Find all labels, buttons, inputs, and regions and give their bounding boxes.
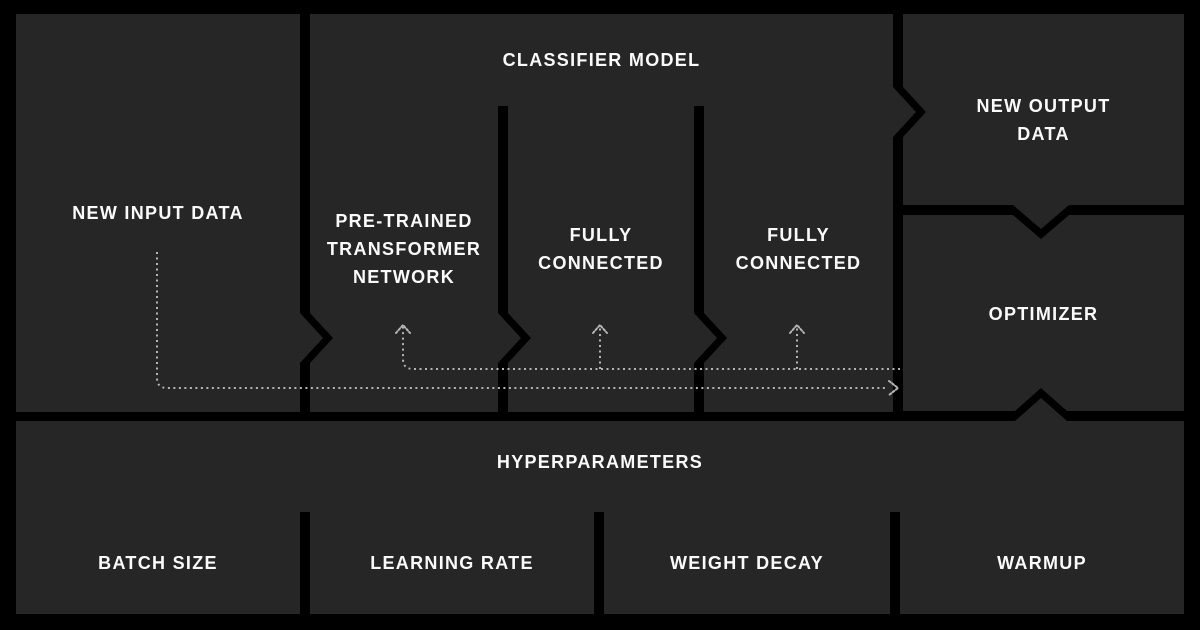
hyperparameters-divider-3 [890,512,900,614]
flow-diagram [0,0,1200,630]
hyperparameters-divider-2 [594,512,604,614]
new-output-data-box [903,14,1184,229]
new-input-data-box [16,14,323,412]
classifier-model-box [310,14,916,412]
hyperparameters-divider-1 [300,512,310,614]
optimizer-box [903,215,1184,411]
diagram-canvas: NEW INPUT DATA CLASSIFIER MODEL PRE-TRAI… [0,0,1200,630]
